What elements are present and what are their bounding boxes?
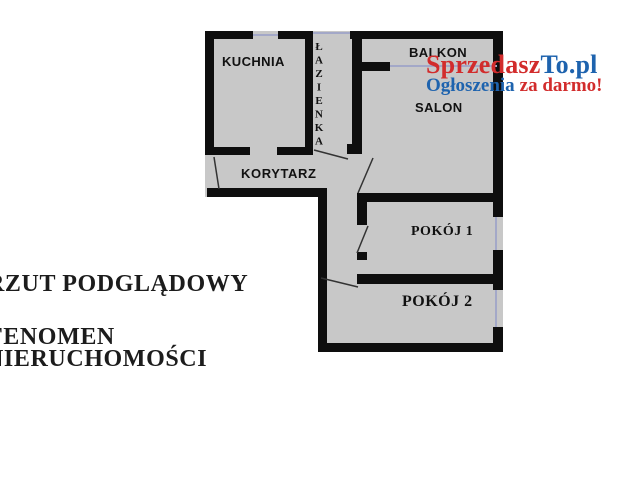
floor-kitchen-bath-block bbox=[205, 31, 363, 155]
room1-label: POKÓJ 1 bbox=[411, 224, 473, 240]
caption-plan-title: RZUT PODGLĄDOWY bbox=[0, 271, 248, 298]
wall-right-lower bbox=[493, 327, 503, 352]
listing-image: KUCHNIA ŁAZIENKA BALKON SALON KORYTARZ P… bbox=[0, 0, 640, 480]
wall-living-room-left bbox=[352, 31, 362, 153]
wall-hall-left bbox=[318, 188, 327, 352]
wall-kitchen-bottom-left bbox=[207, 147, 250, 155]
wall-top-right bbox=[350, 31, 503, 39]
wall-living-room-left-foot bbox=[347, 144, 362, 154]
bathroom-label: ŁAZIENKA bbox=[313, 41, 325, 146]
wall-corridor-bottom bbox=[207, 188, 327, 197]
watermark-tagline: Ogłoszeniaza darmo! bbox=[426, 75, 603, 97]
wall-bottom bbox=[318, 343, 503, 352]
room2-label: POKÓJ 2 bbox=[402, 293, 473, 311]
living-room-label: SALON bbox=[415, 100, 463, 115]
floor-room2-block bbox=[318, 273, 503, 352]
corridor-label: KORYTARZ bbox=[241, 166, 317, 181]
watermark-tagline-part2: za darmo! bbox=[520, 75, 603, 96]
wall-room1-left-stub bbox=[357, 252, 367, 260]
wall-room1-top bbox=[357, 193, 503, 202]
watermark-tagline-part1: Ogłoszenia bbox=[426, 75, 515, 96]
wall-room1-room2-divider bbox=[357, 274, 503, 284]
wall-bathroom-left bbox=[305, 31, 313, 155]
wall-left bbox=[205, 31, 214, 155]
wall-right-mid bbox=[493, 250, 503, 290]
caption-agency-name2: NIERUCHOMOŚCI bbox=[0, 346, 207, 373]
wall-balcony-divider bbox=[362, 62, 390, 71]
kitchen-label: KUCHNIA bbox=[222, 54, 285, 69]
